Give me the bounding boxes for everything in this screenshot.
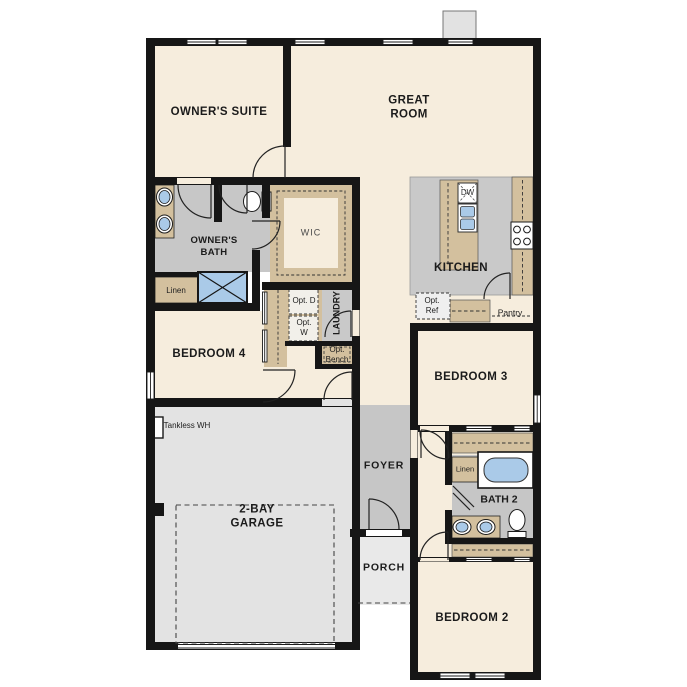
labels-layer: OWNER'S SUITE GREAT ROOM OWNER'S BATH WI… [0,0,687,687]
room-label-bath2: BATH 2 [480,493,517,506]
room-label-owners-bath: OWNER'S BATH [182,235,246,259]
label-opt-ref: Opt. Ref [420,296,444,316]
room-label-garage: 2-BAY GARAGE [217,503,297,532]
label-tankless-wh: Tankless WH [163,421,211,431]
room-label-wic: WIC [301,227,322,238]
room-label-foyer: FOYER [364,459,404,472]
label-pantry: Pantry [498,308,523,319]
label-linen-2: Linen [456,464,474,473]
label-opt-dryer: Opt. D [292,296,316,306]
room-label-bedroom4: BEDROOM 4 [149,347,269,361]
label-dishwasher: DW [461,188,474,198]
room-label-great-room: GREAT ROOM [369,94,449,123]
label-opt-bench: Opt. Bench [320,345,354,365]
room-label-owners-suite: OWNER'S SUITE [169,105,269,119]
room-label-kitchen: KITCHEN [416,261,506,275]
room-label-porch: PORCH [363,561,405,574]
room-label-bedroom2: BEDROOM 2 [412,611,532,625]
label-linen-1: Linen [166,286,186,296]
room-label-bedroom3: BEDROOM 3 [411,370,531,384]
label-opt-washer: Opt. W [292,318,316,338]
floor-plan: OWNER'S SUITE GREAT ROOM OWNER'S BATH WI… [0,0,687,687]
room-label-laundry: LAUNDRY [331,283,342,343]
